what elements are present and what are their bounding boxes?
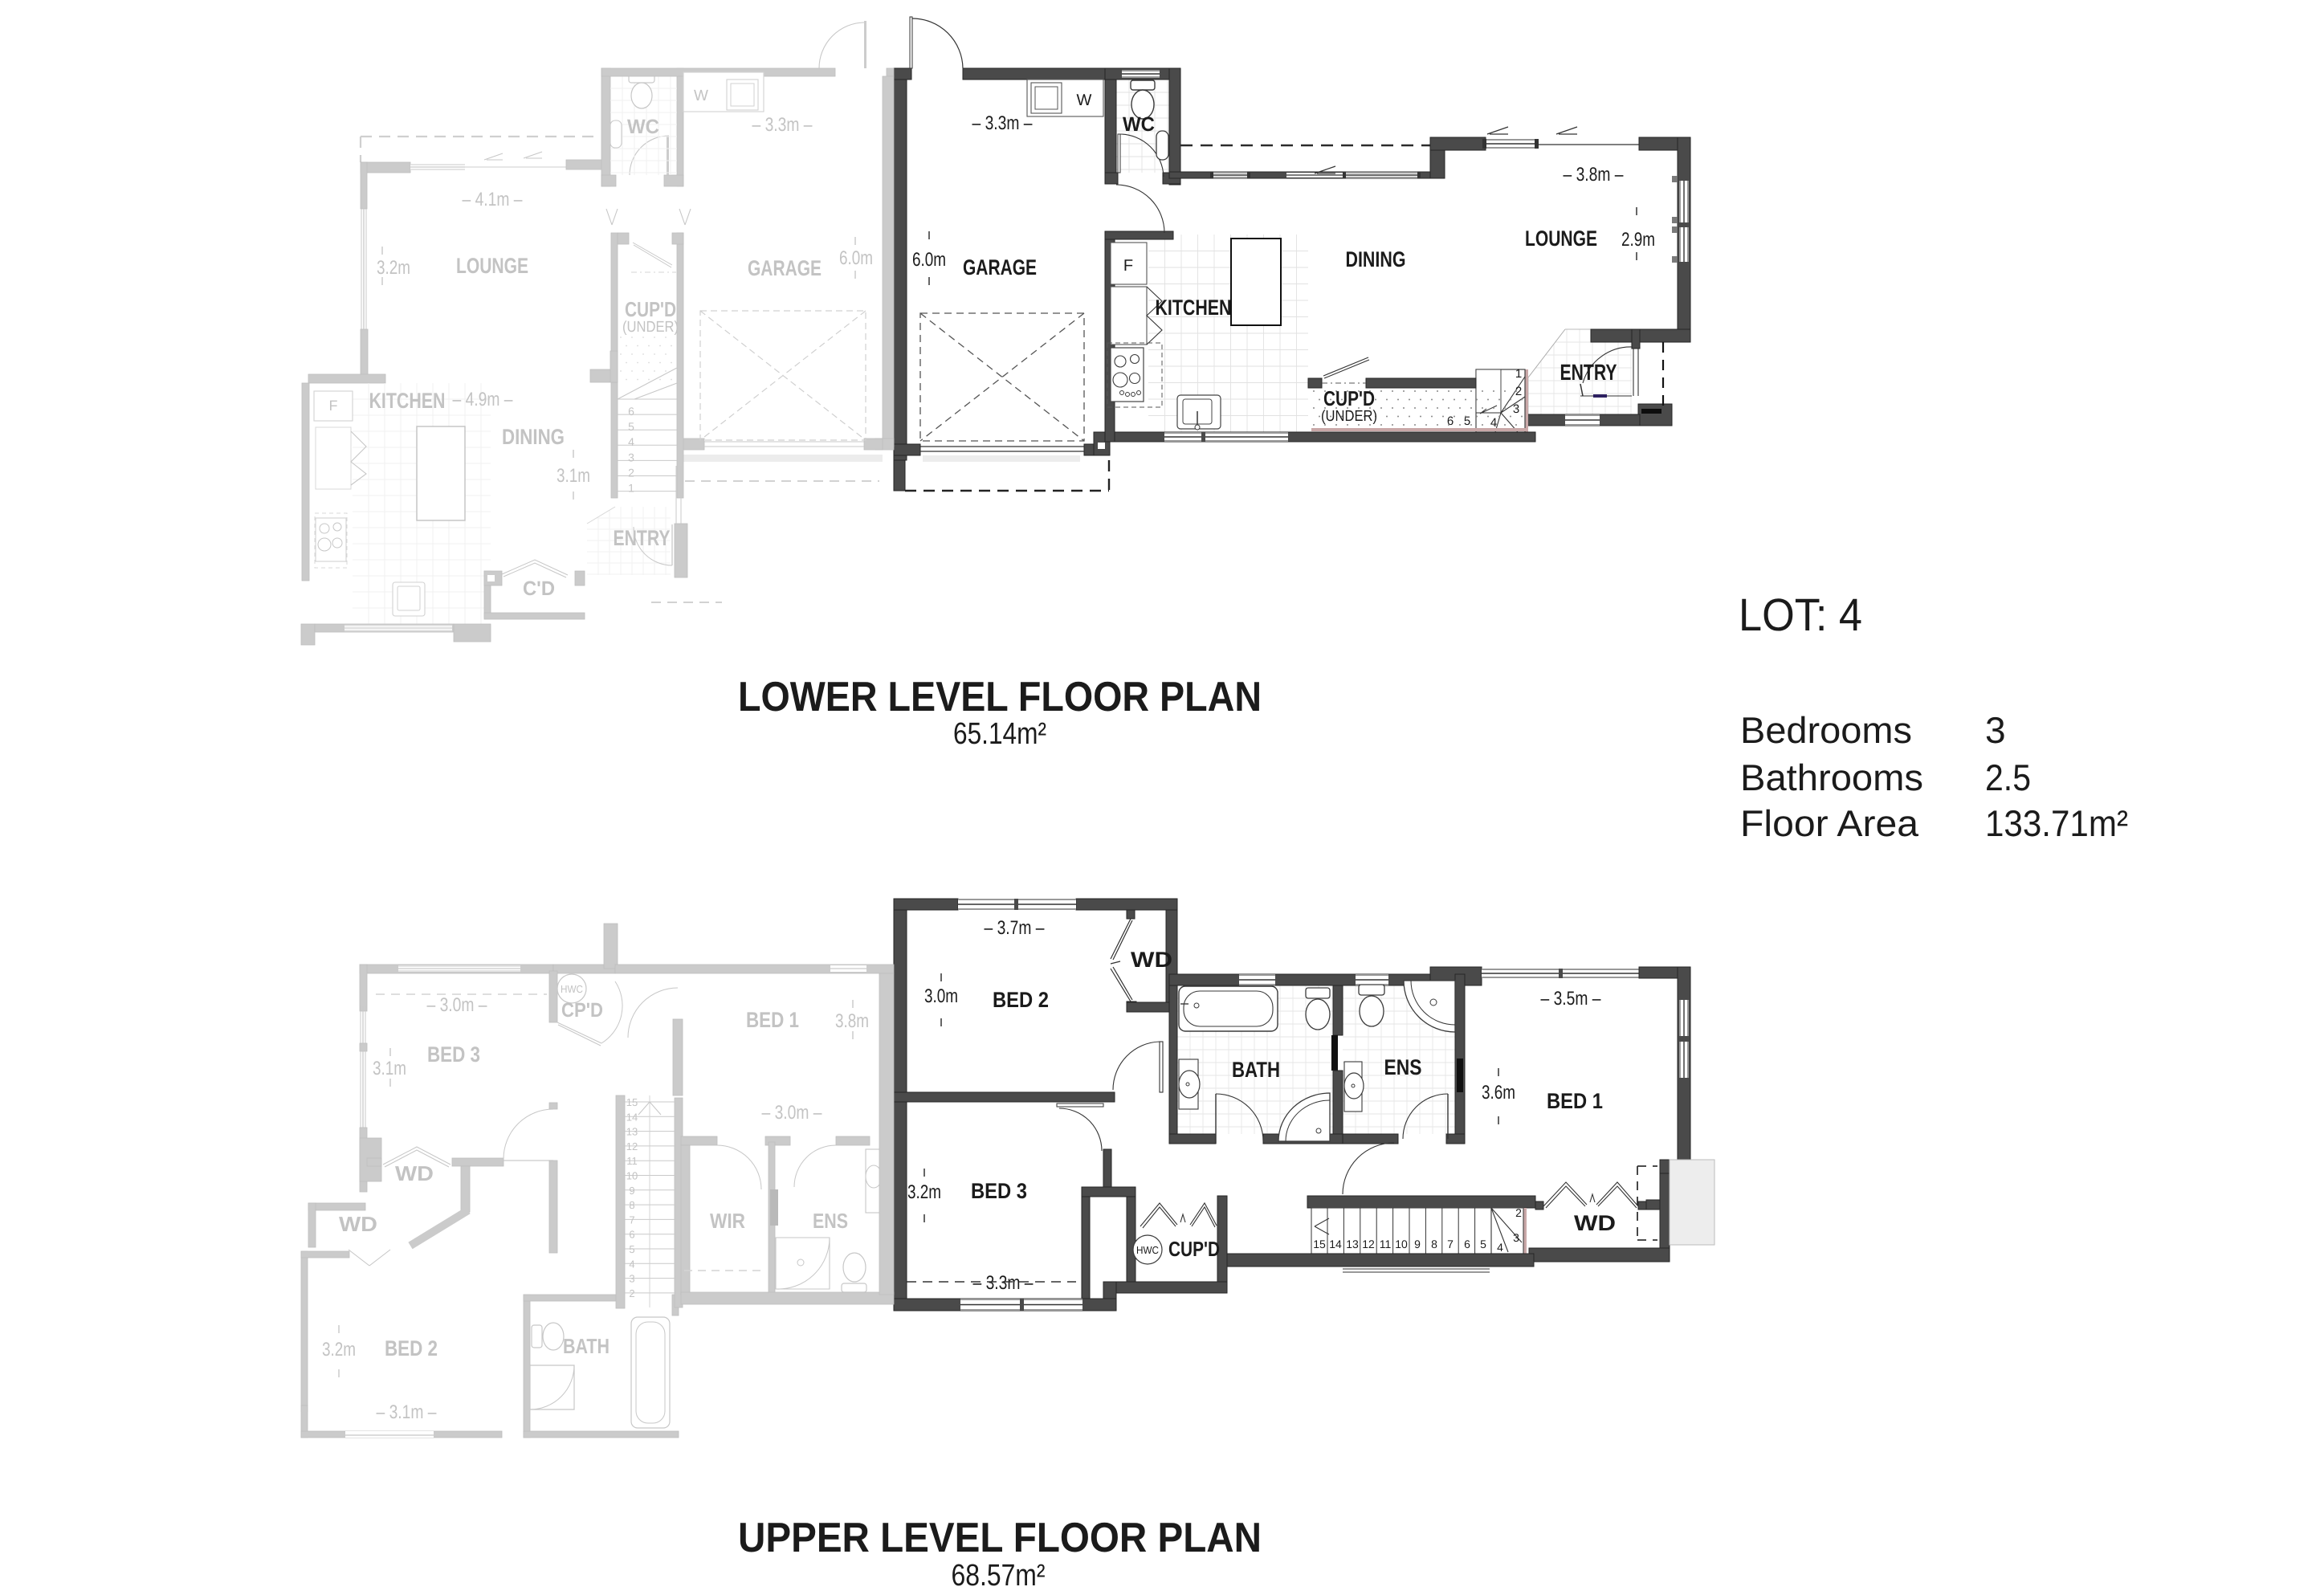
svg-text:7: 7 [629, 1214, 634, 1226]
svg-text:HWC: HWC [1136, 1244, 1159, 1256]
svg-text:1: 1 [628, 482, 634, 495]
svg-text:9: 9 [629, 1185, 634, 1197]
svg-text:6.0m: 6.0m [912, 249, 946, 271]
svg-text:3.2m: 3.2m [377, 257, 410, 279]
svg-text:W: W [1077, 92, 1092, 109]
svg-text:2: 2 [628, 466, 634, 479]
svg-text:8: 8 [1431, 1238, 1437, 1250]
svg-text:3.1m: 3.1m [557, 465, 590, 487]
svg-text:– 4.9m –: – 4.9m – [453, 389, 514, 410]
svg-text:2: 2 [1515, 1206, 1522, 1219]
svg-text:3.2m: 3.2m [322, 1339, 356, 1360]
svg-text:– 3.0m –: – 3.0m – [762, 1102, 823, 1124]
svg-text:WD: WD [1131, 948, 1172, 972]
svg-text:68.57m²: 68.57m² [952, 1559, 1046, 1593]
svg-text:CP'D: CP'D [561, 999, 603, 1022]
svg-text:13: 13 [1346, 1238, 1359, 1250]
svg-text:– 3.1m –: – 3.1m – [377, 1401, 438, 1423]
svg-text:CUP'D: CUP'D [625, 297, 676, 321]
svg-text:14: 14 [1329, 1238, 1342, 1250]
svg-text:4: 4 [628, 435, 634, 448]
svg-text:4: 4 [1497, 1241, 1503, 1254]
svg-text:7: 7 [1447, 1238, 1454, 1250]
svg-text:3.0m: 3.0m [924, 985, 958, 1007]
svg-text:6: 6 [1447, 414, 1454, 428]
svg-text:LOUNGE: LOUNGE [456, 254, 528, 278]
svg-text:DINING: DINING [502, 425, 565, 449]
svg-text:Bathrooms: Bathrooms [1740, 757, 1923, 798]
svg-text:CUP'D: CUP'D [1323, 386, 1375, 410]
svg-text:BED 3: BED 3 [971, 1179, 1027, 1203]
svg-text:11: 11 [626, 1155, 638, 1167]
svg-text:BATH: BATH [1232, 1058, 1280, 1082]
svg-text:HWC: HWC [561, 983, 583, 995]
svg-text:6.0m: 6.0m [839, 247, 873, 269]
svg-text:2.5: 2.5 [1985, 757, 2031, 798]
svg-text:3: 3 [628, 451, 634, 463]
svg-text:BED 2: BED 2 [993, 988, 1049, 1012]
svg-text:Floor Area: Floor Area [1740, 802, 1918, 844]
svg-text:12: 12 [1362, 1238, 1375, 1250]
svg-text:KITCHEN: KITCHEN [1156, 296, 1232, 320]
svg-text:2: 2 [629, 1287, 634, 1299]
svg-text:3: 3 [1513, 402, 1519, 416]
svg-text:F: F [1123, 257, 1133, 275]
svg-text:– 3.7m –: – 3.7m – [985, 917, 1046, 939]
svg-text:BED 2: BED 2 [385, 1336, 438, 1360]
svg-text:WIR: WIR [710, 1209, 745, 1233]
svg-text:5: 5 [629, 1243, 634, 1255]
svg-text:WD: WD [1574, 1211, 1616, 1235]
svg-text:– 3.5m –: – 3.5m – [1541, 988, 1602, 1010]
svg-text:3: 3 [1985, 709, 2006, 751]
svg-text:133.71m²: 133.71m² [1985, 802, 2128, 844]
svg-text:4: 4 [629, 1258, 634, 1270]
svg-text:BATH: BATH [563, 1334, 610, 1358]
svg-text:3.8m: 3.8m [835, 1010, 869, 1032]
svg-text:WD: WD [339, 1212, 377, 1236]
svg-text:ENS: ENS [813, 1209, 848, 1233]
svg-text:15: 15 [1313, 1238, 1326, 1250]
svg-text:BED 3: BED 3 [427, 1042, 480, 1067]
svg-text:ENTRY: ENTRY [614, 526, 671, 550]
svg-text:3.1m: 3.1m [373, 1058, 406, 1079]
svg-text:UPPER LEVEL FLOOR PLAN: UPPER LEVEL FLOOR PLAN [738, 1515, 1262, 1561]
svg-text:ENTRY: ENTRY [1560, 360, 1617, 385]
svg-text:LOUNGE: LOUNGE [1525, 226, 1597, 251]
svg-text:14: 14 [626, 1111, 638, 1123]
svg-text:– 3.3m –: – 3.3m – [973, 1272, 1034, 1294]
svg-text:GARAGE: GARAGE [963, 255, 1037, 279]
svg-text:– 4.1m –: – 4.1m – [463, 189, 524, 210]
svg-text:BED 1: BED 1 [746, 1008, 799, 1032]
svg-text:– 3.0m –: – 3.0m – [427, 994, 488, 1016]
svg-text:5: 5 [1480, 1238, 1486, 1250]
svg-text:3: 3 [1513, 1231, 1519, 1244]
svg-text:– 3.3m –: – 3.3m – [972, 112, 1034, 134]
svg-text:DINING: DINING [1346, 247, 1406, 271]
svg-text:KITCHEN: KITCHEN [369, 389, 446, 413]
svg-text:GARAGE: GARAGE [748, 256, 822, 280]
svg-text:C'D: C'D [523, 577, 555, 600]
svg-text:9: 9 [1414, 1238, 1421, 1250]
svg-text:65.14m²: 65.14m² [953, 717, 1046, 751]
svg-text:5: 5 [628, 420, 634, 433]
svg-text:8: 8 [629, 1199, 634, 1211]
svg-text:– 3.3m –: – 3.3m – [752, 114, 813, 136]
svg-text:WC: WC [627, 116, 659, 138]
svg-text:F: F [329, 398, 338, 414]
svg-text:1: 1 [1515, 367, 1522, 381]
svg-text:12: 12 [626, 1140, 638, 1152]
svg-text:6: 6 [1464, 1238, 1470, 1250]
svg-text:10: 10 [626, 1170, 638, 1182]
svg-text:WC: WC [1123, 113, 1155, 136]
svg-text:– 3.8m –: – 3.8m – [1564, 164, 1625, 186]
svg-text:Bedrooms: Bedrooms [1740, 709, 1912, 751]
svg-text:W: W [694, 88, 708, 104]
svg-text:(UNDER): (UNDER) [622, 319, 679, 336]
svg-text:13: 13 [626, 1126, 638, 1138]
svg-text:3.2m: 3.2m [907, 1181, 941, 1203]
svg-text:WD: WD [395, 1161, 434, 1185]
svg-text:CUP'D: CUP'D [1168, 1237, 1220, 1261]
svg-text:11: 11 [1380, 1238, 1392, 1250]
svg-text:2.9m: 2.9m [1621, 229, 1655, 251]
svg-text:BED 1: BED 1 [1547, 1089, 1603, 1113]
svg-text:4: 4 [1490, 416, 1497, 430]
svg-text:ENS: ENS [1384, 1055, 1422, 1079]
svg-text:15: 15 [626, 1096, 638, 1108]
svg-text:LOT: 4: LOT: 4 [1739, 589, 1862, 641]
svg-text:(UNDER): (UNDER) [1321, 408, 1377, 425]
svg-text:3: 3 [629, 1273, 634, 1285]
svg-text:LOWER LEVEL FLOOR PLAN: LOWER LEVEL FLOOR PLAN [738, 674, 1262, 720]
svg-text:6: 6 [629, 1229, 634, 1241]
svg-text:3.6m: 3.6m [1482, 1082, 1515, 1103]
svg-text:6: 6 [628, 405, 634, 418]
svg-text:10: 10 [1395, 1238, 1408, 1250]
